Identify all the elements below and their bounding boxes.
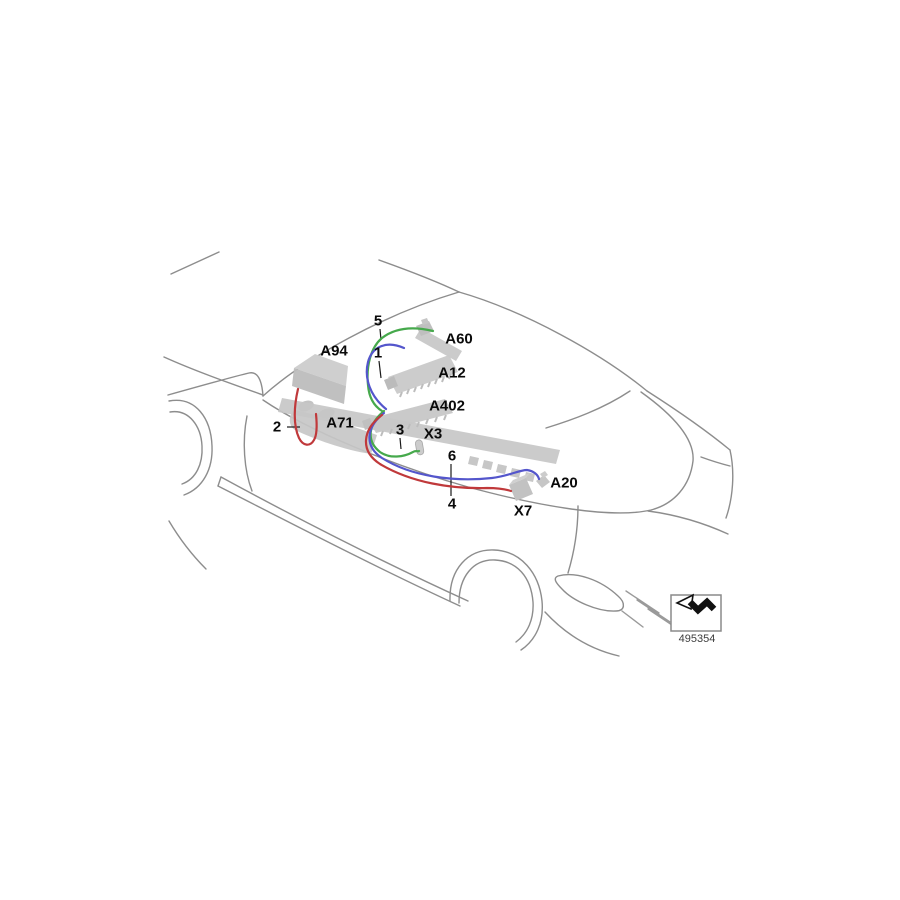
component-label-a94: A94 — [320, 343, 348, 360]
callout-line-3 — [400, 438, 401, 449]
component-label-a71: A71 — [326, 415, 354, 432]
rear-wheel-arch-inner — [459, 560, 533, 642]
component-label-a20: A20 — [550, 475, 578, 492]
rear-panel-edge — [568, 506, 578, 573]
front-roof-strip — [379, 260, 459, 292]
callout-line-1 — [379, 361, 381, 378]
callout-number-3: 3 — [396, 422, 404, 439]
callout-number-2: 2 — [273, 419, 281, 436]
component-label-x7: X7 — [514, 503, 532, 520]
trunk-lid-lower-edge — [648, 511, 728, 534]
connector-a20-nub — [540, 471, 548, 478]
arrow-zigzag-shaft — [690, 602, 714, 610]
trunk-fork-line — [701, 457, 730, 466]
front-wheel-arch-inner — [170, 412, 202, 484]
callout-number-5: 5 — [374, 313, 382, 330]
rear-right-edge — [726, 450, 733, 518]
stamp-border — [671, 595, 721, 631]
rear-wheel-arch-outer — [450, 550, 542, 650]
component-label-x3: X3 — [424, 426, 442, 443]
callout-number-6: 6 — [448, 448, 456, 465]
component-label-a12: A12 — [438, 365, 466, 382]
rocker-end-cap — [218, 477, 221, 486]
stamp-box — [671, 595, 721, 631]
taillight-outline — [555, 575, 623, 611]
cowl-line — [164, 357, 263, 395]
rear-bumper-lower — [545, 612, 619, 656]
component-label-a402: A402 — [429, 398, 465, 415]
diagram-stamp-number: 495354 — [679, 633, 716, 645]
rear-window-line — [546, 391, 630, 428]
parts-diagram: A94 A60 A12 A402 A71 X3 A20 X7 5 1 2 3 6… — [0, 0, 900, 900]
component-label-a60: A60 — [445, 331, 473, 348]
roofline — [459, 292, 647, 391]
rocker-line-lower — [218, 486, 460, 606]
front-wheel-arch-outer — [169, 400, 212, 495]
door-leading-edge — [244, 416, 252, 491]
far-hood-edge-line — [171, 252, 219, 274]
callout-number-4: 4 — [448, 496, 456, 513]
fender-beltline-mirror — [168, 373, 263, 396]
front-bumper-lower — [169, 521, 206, 569]
callout-number-1: 1 — [374, 345, 382, 362]
rocker-line-upper — [221, 477, 468, 601]
